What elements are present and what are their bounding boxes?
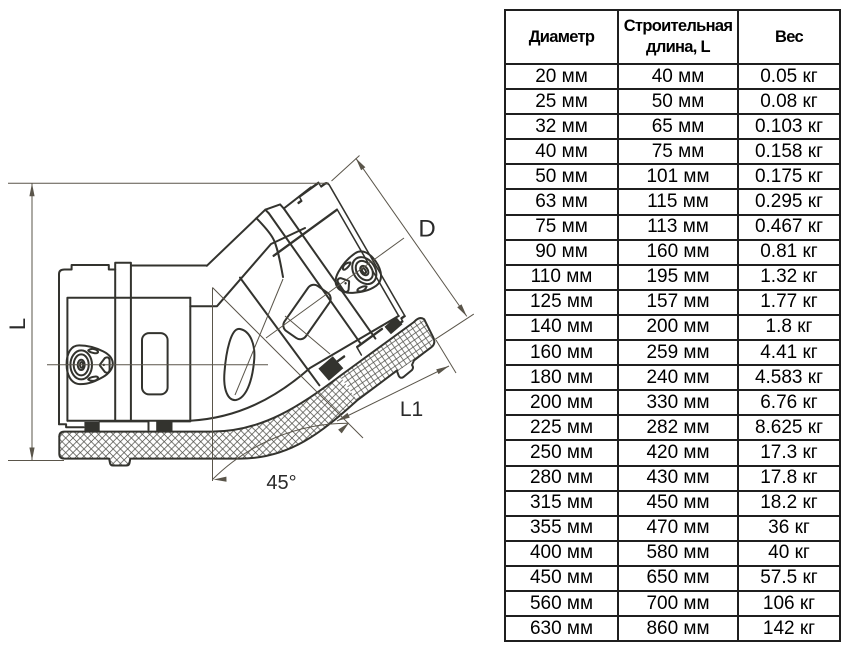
svg-text:L1: L1 (400, 398, 423, 421)
svg-text:D: D (418, 216, 435, 243)
svg-text:L: L (5, 318, 30, 330)
svg-text:45°: 45° (266, 472, 296, 494)
